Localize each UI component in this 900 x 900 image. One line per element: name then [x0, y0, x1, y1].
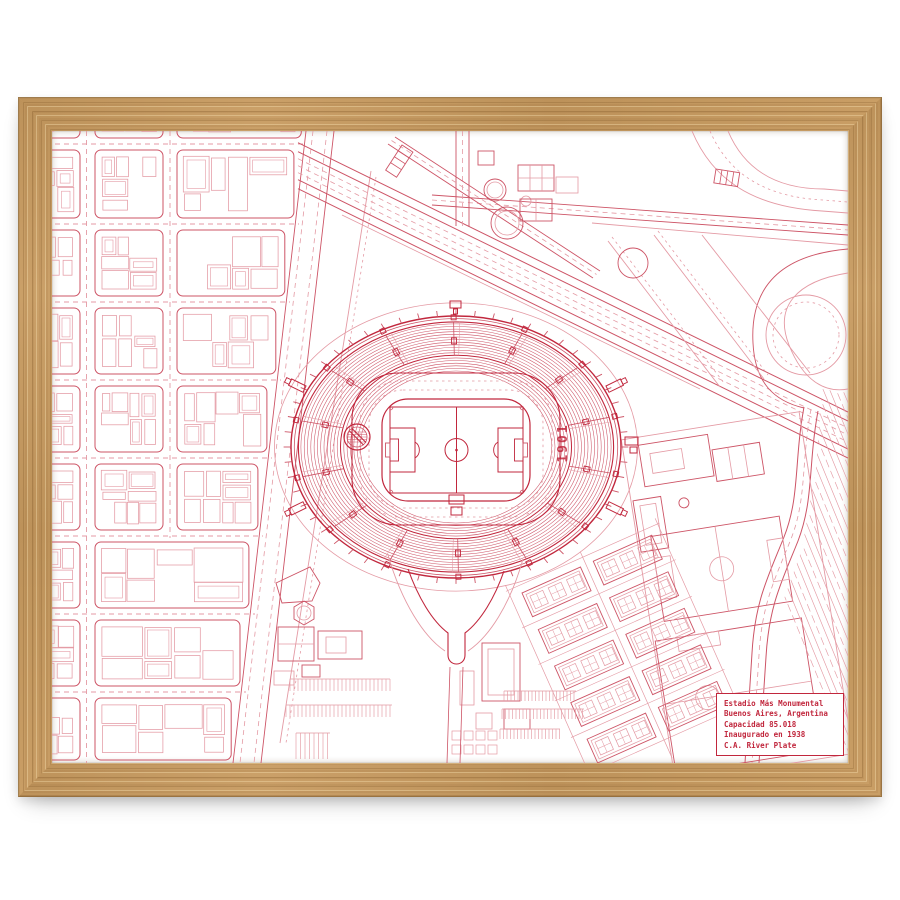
- photo-backdrop: 1901 Estadio Más Monumental Buenos Aires…: [0, 0, 900, 900]
- football-pitch: [386, 407, 528, 515]
- frame-bottom-rail: [18, 763, 882, 797]
- apartment-slabs-layer: [504, 518, 749, 763]
- plate-line-city: Buenos Aires, Argentina: [724, 709, 839, 719]
- plate-line-capacity: Capacidad 85.018: [724, 720, 839, 730]
- water-plant-layer: [386, 145, 740, 239]
- plate-line-name: Estadio Más Monumental: [724, 699, 839, 709]
- title-plate: Estadio Más Monumental Buenos Aires, Arg…: [716, 693, 844, 756]
- pitch-year-label: 1901: [556, 423, 571, 462]
- stadium-layer: 1901: [275, 301, 639, 763]
- frame-left-rail: [18, 97, 52, 797]
- plate-line-inaugurated: Inaugurado en 1938: [724, 730, 839, 740]
- picture-frame: 1901 Estadio Más Monumental Buenos Aires…: [18, 97, 882, 797]
- stadium-blueprint-print: 1901 Estadio Más Monumental Buenos Aires…: [52, 131, 848, 763]
- plate-line-club: C.A. River Plate: [724, 741, 839, 751]
- frame-top-rail: [18, 97, 882, 131]
- city-blocks-layer: [52, 131, 301, 760]
- frame-right-rail: [848, 97, 882, 797]
- stadium-map-drawing: 1901: [52, 131, 848, 763]
